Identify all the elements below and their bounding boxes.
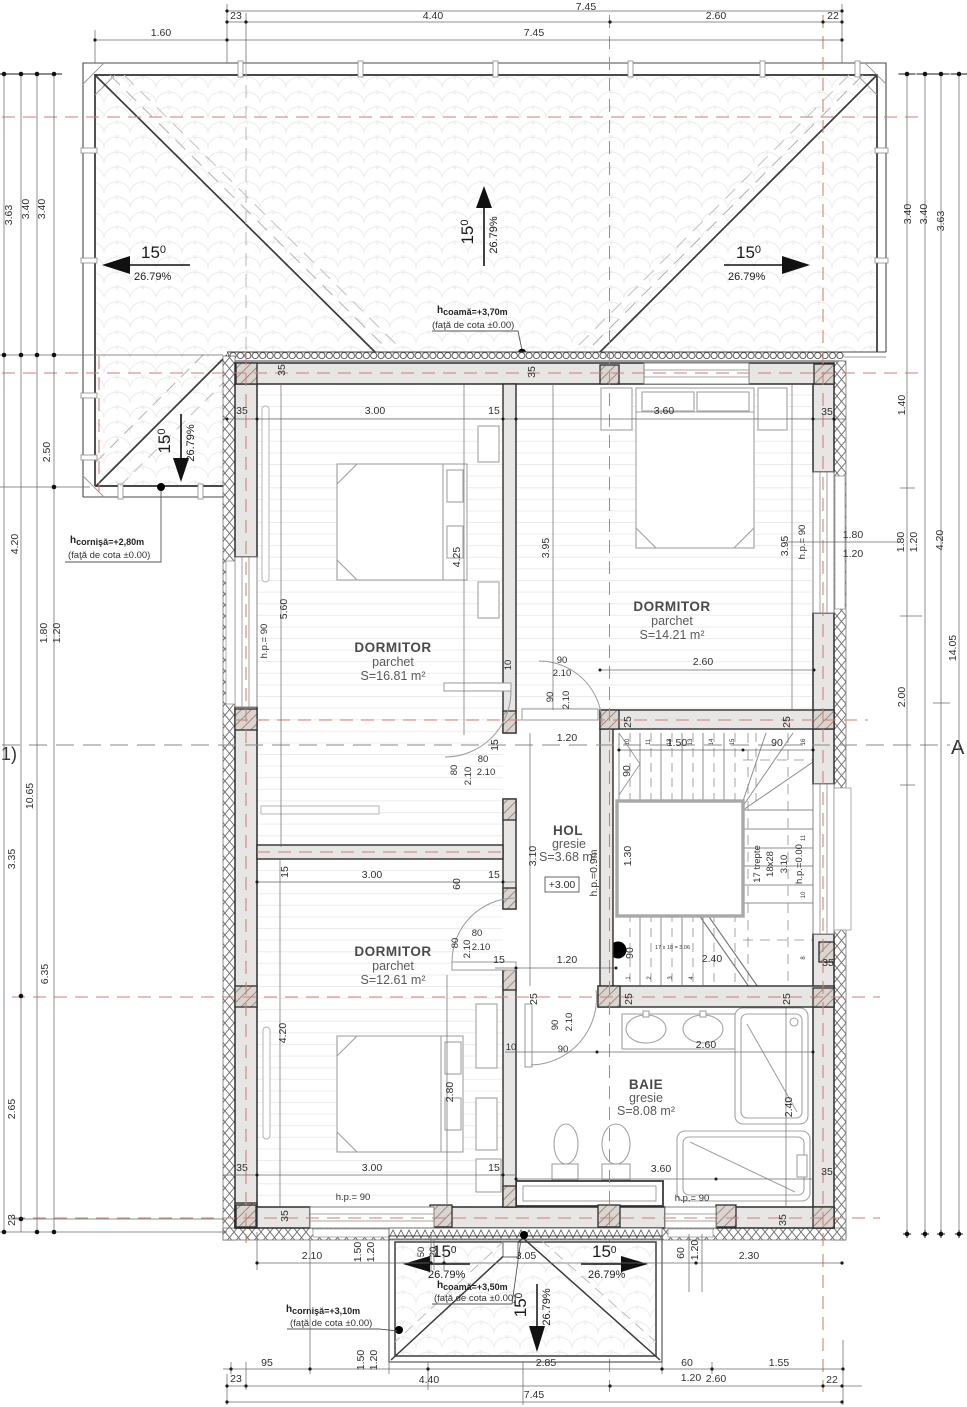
svg-text:S=12.61 m²: S=12.61 m² [361, 973, 426, 987]
svg-text:2.50: 2.50 [41, 442, 53, 463]
svg-text:2.00: 2.00 [896, 687, 908, 708]
svg-text:3.10: 3.10 [779, 855, 790, 874]
svg-text:h.p.= 90: h.p.= 90 [336, 1192, 371, 1203]
svg-text:23: 23 [230, 10, 242, 22]
svg-text:S=16.81 m²: S=16.81 m² [361, 669, 426, 683]
svg-text:4.40: 4.40 [419, 1374, 440, 1386]
svg-text:1.20: 1.20 [681, 1372, 702, 1384]
svg-text:(faţă de cota ±0.00): (faţă de cota ±0.00) [68, 550, 150, 561]
svg-text:S=3.68 m²: S=3.68 m² [539, 850, 597, 864]
svg-text:3.40: 3.40 [20, 199, 32, 220]
svg-text:1.30: 1.30 [622, 846, 634, 867]
svg-text:DORMITOR: DORMITOR [354, 640, 431, 655]
svg-text:1.40: 1.40 [896, 395, 908, 416]
svg-text:25: 25 [781, 993, 793, 1005]
svg-text:35: 35 [821, 1166, 833, 1178]
svg-text:90: 90 [557, 655, 568, 666]
svg-text:7.45: 7.45 [524, 1389, 545, 1401]
svg-text:hcornişă=+3,10m: hcornişă=+3,10m [286, 1304, 360, 1316]
svg-text:4.20: 4.20 [9, 534, 21, 555]
svg-text:25: 25 [623, 993, 635, 1005]
svg-text:14.05: 14.05 [947, 635, 959, 661]
svg-text:26.79%: 26.79% [428, 1269, 466, 1281]
svg-text:22: 22 [827, 10, 839, 22]
svg-text:26.79%: 26.79% [541, 1288, 553, 1326]
svg-text:20: 20 [428, 1247, 439, 1258]
svg-text:35: 35 [821, 406, 833, 418]
svg-text:10: 10 [506, 1042, 517, 1053]
svg-text:3.63: 3.63 [935, 211, 947, 232]
svg-text:60: 60 [675, 1247, 687, 1259]
svg-text:1.80: 1.80 [843, 529, 864, 541]
svg-text:2.10: 2.10 [462, 940, 473, 959]
svg-text:gresie: gresie [629, 1091, 663, 1105]
svg-text:h.p.= 90: h.p.= 90 [675, 1193, 710, 1204]
svg-text:2.10: 2.10 [553, 668, 572, 679]
svg-text:HOL: HOL [553, 823, 583, 838]
svg-text:1.60: 1.60 [151, 27, 172, 39]
svg-text:15: 15 [488, 405, 500, 417]
svg-text:60: 60 [681, 1357, 693, 1369]
svg-text:2.65: 2.65 [6, 1099, 18, 1120]
svg-text:3.60: 3.60 [651, 1163, 672, 1175]
svg-text:1.50: 1.50 [352, 1242, 364, 1263]
svg-text:2.10: 2.10 [564, 1013, 575, 1032]
svg-text:BAIE: BAIE [629, 1077, 663, 1092]
svg-text:4.40: 4.40 [423, 10, 444, 22]
svg-text:h.p.=0.00: h.p.=0.00 [794, 844, 805, 884]
svg-text:3.00: 3.00 [362, 1162, 383, 1174]
svg-text:60: 60 [451, 878, 463, 890]
svg-text:5.60: 5.60 [278, 599, 290, 620]
svg-text:hcoamă=+3,50m: hcoamă=+3,50m [437, 1280, 508, 1292]
svg-text:35: 35 [276, 364, 288, 376]
svg-text:S=14.21 m²: S=14.21 m² [640, 628, 705, 642]
svg-text:11: 11 [801, 834, 807, 841]
svg-text:4.20: 4.20 [277, 1023, 289, 1044]
svg-text:2.60: 2.60 [706, 10, 727, 22]
svg-text:parchet: parchet [651, 614, 693, 628]
svg-text:2.80: 2.80 [444, 1082, 456, 1103]
svg-text:(faţă de cota ±0.00): (faţă de cota ±0.00) [434, 1293, 516, 1304]
svg-text:1.20: 1.20 [557, 954, 578, 966]
svg-text:90: 90 [621, 765, 633, 777]
svg-text:1.80: 1.80 [895, 532, 907, 553]
svg-text:2.10: 2.10 [463, 767, 474, 786]
svg-text:h.p.= 90: h.p.= 90 [259, 624, 270, 659]
svg-text:1): 1) [1, 744, 17, 764]
svg-text:6.35: 6.35 [39, 964, 51, 985]
svg-text:+3.00: +3.00 [549, 879, 576, 891]
svg-text:90: 90 [624, 947, 636, 959]
svg-text:7.45: 7.45 [576, 1, 597, 13]
svg-text:80: 80 [449, 765, 460, 776]
svg-text:2.60: 2.60 [696, 1039, 717, 1051]
svg-text:1.20: 1.20 [365, 1242, 377, 1263]
svg-text:17 trepte: 17 trepte [752, 845, 763, 883]
svg-text:95: 95 [261, 1357, 273, 1369]
svg-text:18x28: 18x28 [765, 851, 776, 877]
svg-text:3.10: 3.10 [527, 846, 539, 867]
svg-text:15: 15 [489, 739, 501, 751]
svg-text:2.60: 2.60 [693, 656, 714, 668]
svg-text:1.20: 1.20 [843, 548, 864, 560]
svg-text:3.40: 3.40 [36, 199, 48, 220]
svg-text:80: 80 [450, 938, 461, 949]
svg-text:22: 22 [826, 1374, 838, 1386]
svg-text:35: 35 [822, 957, 834, 969]
svg-text:2.40: 2.40 [702, 953, 723, 965]
svg-text:2.10: 2.10 [477, 767, 496, 778]
svg-text:DORMITOR: DORMITOR [354, 944, 431, 959]
svg-text:26.79%: 26.79% [728, 271, 766, 283]
svg-text:3.40: 3.40 [918, 204, 930, 225]
svg-text:2.10: 2.10 [561, 691, 572, 710]
svg-text:3.60: 3.60 [654, 405, 675, 417]
svg-text:(faţă de cota ±0.00): (faţă de cota ±0.00) [290, 1318, 372, 1329]
svg-text:11: 11 [646, 738, 652, 745]
svg-text:35: 35 [279, 1210, 291, 1222]
svg-text:2.10: 2.10 [472, 942, 491, 953]
svg-text:3.35: 3.35 [6, 849, 18, 870]
svg-text:26.79%: 26.79% [185, 424, 197, 462]
svg-text:gresie: gresie [552, 837, 586, 851]
svg-text:1.20: 1.20 [908, 532, 920, 553]
svg-text:3.95: 3.95 [779, 536, 791, 557]
svg-text:17 x 18 = 3.06: 17 x 18 = 3.06 [655, 945, 690, 951]
svg-text:1.20: 1.20 [557, 732, 578, 744]
svg-text:15: 15 [279, 866, 291, 878]
svg-text:15: 15 [488, 1162, 500, 1174]
svg-text:hcornişă=+2,80m: hcornişă=+2,80m [70, 535, 144, 547]
svg-text:10.65: 10.65 [24, 783, 36, 809]
svg-text:15: 15 [493, 954, 505, 966]
svg-text:10: 10 [503, 660, 514, 671]
svg-text:35: 35 [777, 1214, 789, 1226]
svg-text:2.10: 2.10 [302, 1250, 323, 1262]
svg-text:1.20: 1.20 [368, 1350, 380, 1371]
svg-text:2.60: 2.60 [706, 1373, 727, 1385]
svg-text:A: A [951, 737, 965, 759]
svg-text:1.55: 1.55 [769, 1357, 790, 1369]
svg-text:3.63: 3.63 [3, 205, 15, 226]
svg-text:1.50: 1.50 [667, 737, 688, 749]
svg-text:1.50: 1.50 [355, 1350, 367, 1371]
svg-text:10: 10 [801, 891, 807, 898]
svg-text:15: 15 [730, 738, 736, 745]
svg-text:15: 15 [488, 869, 500, 881]
svg-text:1.20: 1.20 [51, 623, 63, 644]
svg-text:parchet: parchet [372, 655, 414, 669]
svg-text:parchet: parchet [372, 959, 414, 973]
svg-text:26.79%: 26.79% [488, 216, 500, 254]
svg-text:80: 80 [472, 928, 483, 939]
svg-text:80: 80 [478, 754, 489, 765]
svg-text:25: 25 [622, 716, 634, 728]
svg-text:3.95: 3.95 [540, 538, 552, 559]
svg-text:3.05: 3.05 [516, 1250, 537, 1262]
svg-text:4.20: 4.20 [934, 530, 946, 551]
svg-text:23: 23 [230, 1373, 242, 1385]
svg-text:90: 90 [558, 1044, 569, 1055]
svg-text:4.25: 4.25 [451, 547, 463, 568]
svg-text:25: 25 [781, 716, 793, 728]
svg-text:2.85: 2.85 [536, 1357, 557, 1369]
svg-text:(faţă de cota ±0.00): (faţă de cota ±0.00) [432, 320, 514, 331]
svg-text:13: 13 [688, 738, 694, 745]
svg-text:3.40: 3.40 [902, 204, 914, 225]
svg-text:35: 35 [236, 405, 248, 417]
svg-text:25: 25 [528, 993, 540, 1005]
svg-text:1.80: 1.80 [38, 623, 50, 644]
svg-text:10: 10 [625, 738, 631, 745]
svg-text:2.30: 2.30 [739, 1250, 760, 1262]
svg-text:2.40: 2.40 [783, 1097, 795, 1118]
svg-text:23: 23 [6, 1214, 18, 1226]
svg-text:1.20: 1.20 [689, 1240, 701, 1261]
svg-text:35: 35 [526, 366, 538, 378]
svg-text:90: 90 [545, 692, 556, 703]
svg-text:16: 16 [801, 738, 807, 745]
svg-text:S=8.08 m²: S=8.08 m² [617, 1104, 675, 1118]
svg-text:3.00: 3.00 [362, 869, 383, 881]
svg-text:50: 50 [416, 1247, 427, 1258]
svg-text:DORMITOR: DORMITOR [633, 599, 710, 614]
svg-text:7.45: 7.45 [524, 27, 545, 39]
svg-text:14: 14 [709, 738, 715, 745]
svg-text:hcoamă=+3,70m: hcoamă=+3,70m [437, 305, 508, 317]
svg-text:26.79%: 26.79% [134, 271, 172, 283]
svg-text:35: 35 [236, 1162, 248, 1174]
svg-text:3.00: 3.00 [365, 405, 386, 417]
svg-text:90: 90 [550, 1020, 561, 1031]
svg-text:26.79%: 26.79% [588, 1269, 626, 1281]
svg-text:90: 90 [771, 737, 783, 749]
